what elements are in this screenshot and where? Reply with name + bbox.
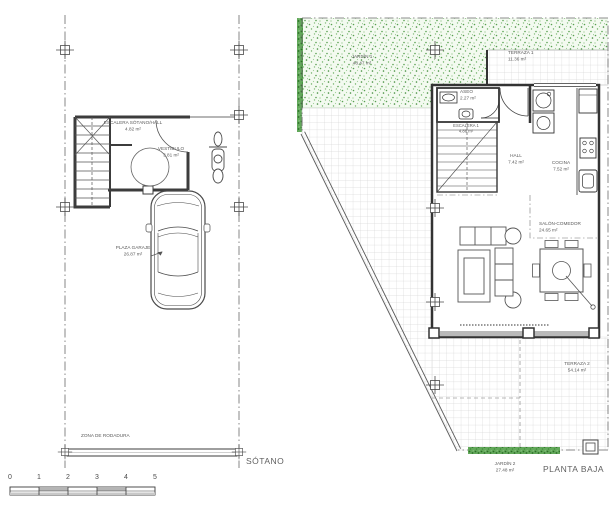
- car-symbol: [146, 191, 210, 309]
- room-label-plaza-garaje: PLAZA GARAJE 26.87 m²: [116, 246, 151, 258]
- room-name: ESCALERA SÓTANO/HALL: [104, 121, 162, 127]
- terraza1-paving: [487, 50, 608, 85]
- utility-box: [583, 440, 598, 454]
- jardin2-strip: [468, 447, 560, 454]
- scale-tick-0: 0: [8, 474, 12, 481]
- room-area: 4.82 m²: [104, 127, 162, 133]
- room-name: JARDÍN 2: [495, 462, 516, 468]
- room-label-escalera1: ESCALERA 1 4.88 m²: [453, 124, 479, 135]
- plan-title-planta-baja: PLANTA BAJA: [543, 464, 604, 474]
- room-name: PLAZA GARAJE: [116, 246, 151, 252]
- room-label-zona-rodadura: ZONA DE RODADURA: [81, 434, 130, 440]
- room-area: 54.14 m²: [564, 368, 589, 374]
- room-name: ZONA DE RODADURA: [81, 434, 130, 440]
- room-label-terraza2: TERRAZA 2 54.14 m²: [564, 362, 589, 374]
- room-label-escalera-sotano-hall: ESCALERA SÓTANO/HALL 4.82 m²: [104, 121, 162, 133]
- room-area: 7.42 m²: [508, 160, 524, 166]
- scale-tick-1: 1: [37, 474, 41, 481]
- room-label-aseo: ASEO 2.27 m²: [460, 90, 476, 102]
- room-label-terraza1: TERRAZA 1 11.36 m²: [508, 51, 533, 63]
- sofa-symbol: [458, 227, 521, 308]
- room-area: 48.47 m²: [352, 61, 373, 67]
- scale-tick-3: 3: [95, 474, 99, 481]
- plan-linework: [0, 0, 616, 508]
- plan-title-sotano: SÓTANO: [246, 456, 284, 466]
- room-name: HALL: [508, 154, 524, 160]
- room-area: 2.27 m²: [460, 96, 476, 102]
- room-name: JARDÍN 1: [352, 55, 373, 61]
- terraza2-paving: [432, 337, 608, 450]
- floor-plan-sheet: ESCALERA SÓTANO/HALL 4.82 m² VESTÍBULO 3…: [0, 0, 616, 508]
- scale-tick-5: 5: [153, 474, 157, 481]
- room-name: TERRAZA 2: [564, 362, 589, 368]
- planta-baja-plan: [297, 18, 608, 454]
- room-area: 26.87 m²: [116, 252, 151, 258]
- room-area: 7.52 m²: [552, 167, 570, 173]
- room-area: 24.65 m²: [539, 228, 581, 234]
- paving-left: [302, 108, 432, 398]
- scale-bar: [10, 487, 155, 495]
- room-area: 3.81 m²: [158, 153, 184, 159]
- room-label-vestibulo: VESTÍBULO 3.81 m²: [158, 147, 184, 159]
- motorcycle-symbol: [209, 132, 227, 183]
- room-area: 27.48 m²: [495, 468, 516, 474]
- room-label-jardin1: JARDÍN 1 48.47 m²: [352, 55, 373, 67]
- room-label-jardin2: JARDÍN 2 27.48 m²: [495, 462, 516, 474]
- room-name: COCINA: [552, 161, 570, 167]
- room-name: VESTÍBULO: [158, 147, 184, 153]
- room-name: SALÓN-COMEDOR: [539, 222, 581, 228]
- room-area: 4.88 m²: [453, 129, 479, 134]
- scale-tick-4: 4: [124, 474, 128, 481]
- room-area: 11.36 m²: [508, 57, 533, 63]
- room-label-hall: HALL 7.42 m²: [508, 154, 524, 166]
- zona-rodadura-strip: [67, 449, 237, 456]
- room-name: TERRAZA 1: [508, 51, 533, 57]
- room-label-cocina: COCINA 7.52 m²: [552, 161, 570, 173]
- scale-tick-2: 2: [66, 474, 70, 481]
- room-label-salon-comedor: SALÓN-COMEDOR 24.65 m²: [539, 222, 581, 234]
